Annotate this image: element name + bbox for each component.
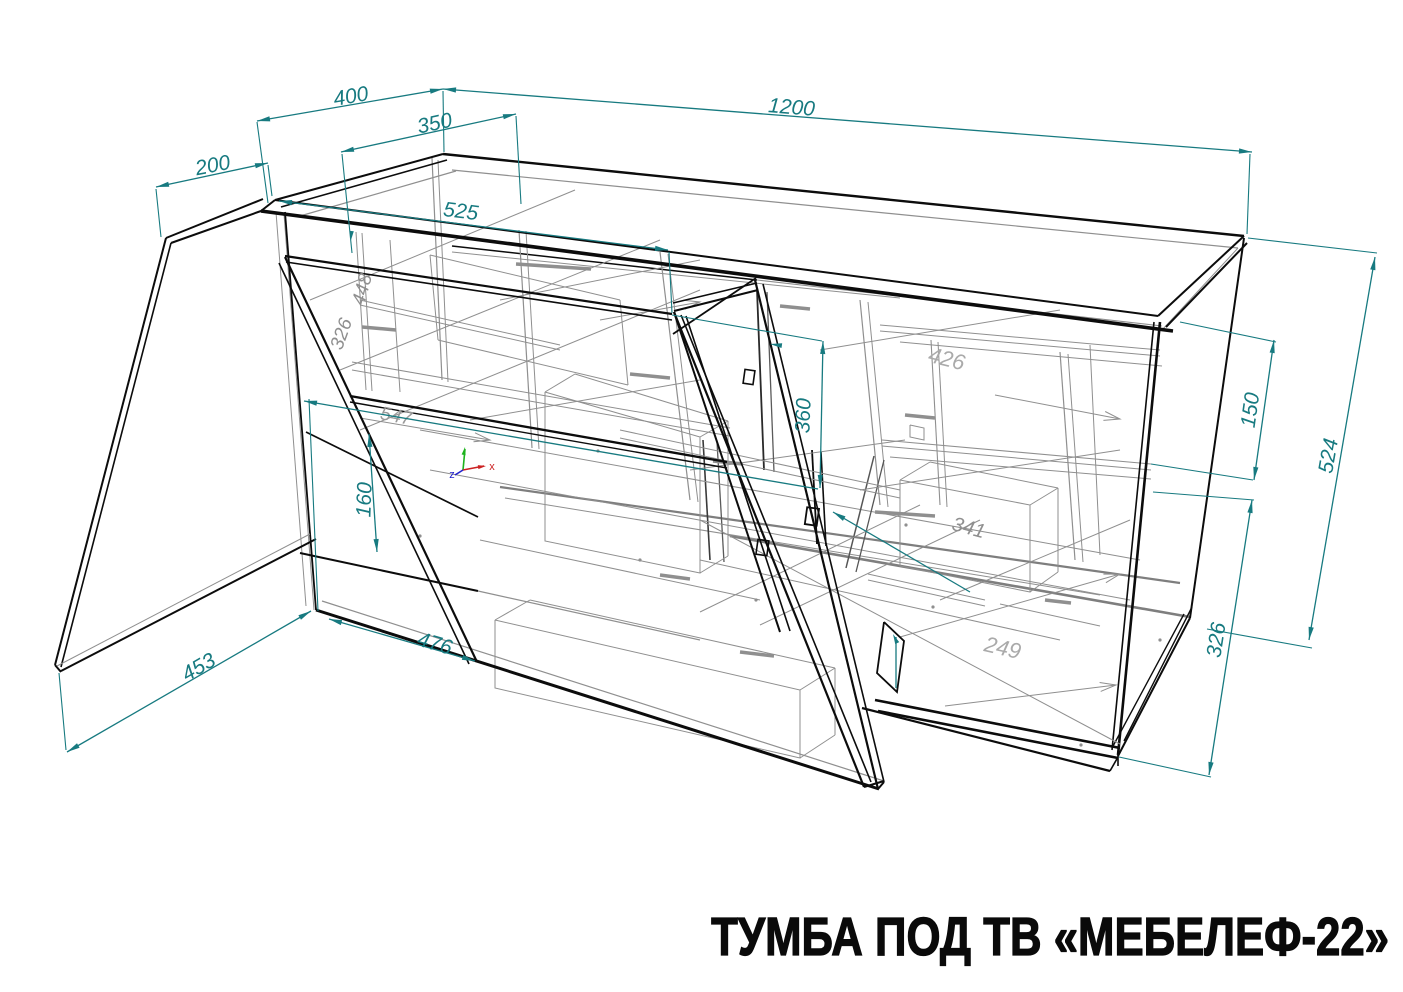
- svg-text:326: 326: [327, 315, 358, 352]
- svg-text:525: 525: [442, 198, 480, 225]
- svg-text:400: 400: [332, 82, 371, 111]
- svg-text:160: 160: [352, 482, 376, 518]
- svg-text:249: 249: [981, 631, 1023, 664]
- svg-text:150: 150: [1237, 391, 1265, 429]
- svg-text:326: 326: [1202, 621, 1230, 660]
- svg-text:200: 200: [192, 151, 232, 181]
- svg-text:360: 360: [791, 398, 815, 434]
- svg-text:x: x: [489, 461, 495, 473]
- svg-text:350: 350: [415, 109, 454, 139]
- svg-text:448: 448: [348, 271, 377, 307]
- svg-text:1200: 1200: [767, 94, 816, 121]
- svg-text:453: 453: [178, 648, 220, 686]
- svg-text:476: 476: [415, 628, 455, 660]
- svg-text:z: z: [449, 469, 455, 481]
- svg-text:341: 341: [950, 513, 988, 543]
